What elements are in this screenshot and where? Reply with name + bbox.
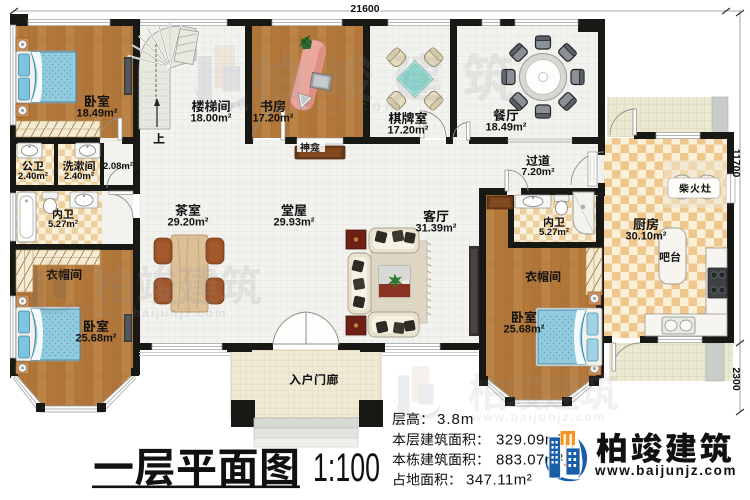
svg-text:5.27m²: 5.27m² [539,227,569,238]
svg-text:7.20m²: 7.20m² [521,166,555,178]
svg-text:21600: 21600 [350,3,379,15]
svg-text:30.10m²: 30.10m² [626,231,667,243]
svg-text:29.93m²: 29.93m² [274,217,315,229]
svg-text:2300: 2300 [730,367,742,391]
svg-text:1:100: 1:100 [313,446,380,490]
svg-text:25.68m²: 25.68m² [504,324,545,336]
svg-text:347.11m²: 347.11m² [466,472,532,489]
svg-text:www.baijunjz.com: www.baijunjz.com [594,463,737,478]
svg-text:2.40m²: 2.40m² [64,171,94,182]
svg-text:25.68m²: 25.68m² [76,333,117,345]
svg-text:5.27m²: 5.27m² [48,219,78,230]
svg-text:18.49m²: 18.49m² [77,108,118,120]
svg-text:www.baijunjz.com: www.baijunjz.com [205,98,403,115]
svg-text:www.baijunjz.com: www.baijunjz.com [471,410,606,424]
svg-text:17.20m²: 17.20m² [388,125,429,137]
svg-text:31.39m²: 31.39m² [416,223,457,235]
svg-text:2.40m²: 2.40m² [18,171,48,182]
svg-text:3.8m: 3.8m [437,411,474,428]
svg-text:29.20m²: 29.20m² [168,217,209,229]
svg-text:2.08m²: 2.08m² [103,161,133,172]
svg-text:www.baijunjz.com: www.baijunjz.com [94,306,227,320]
svg-text:18.49m²: 18.49m² [486,122,527,134]
svg-text:11700: 11700 [730,149,742,178]
